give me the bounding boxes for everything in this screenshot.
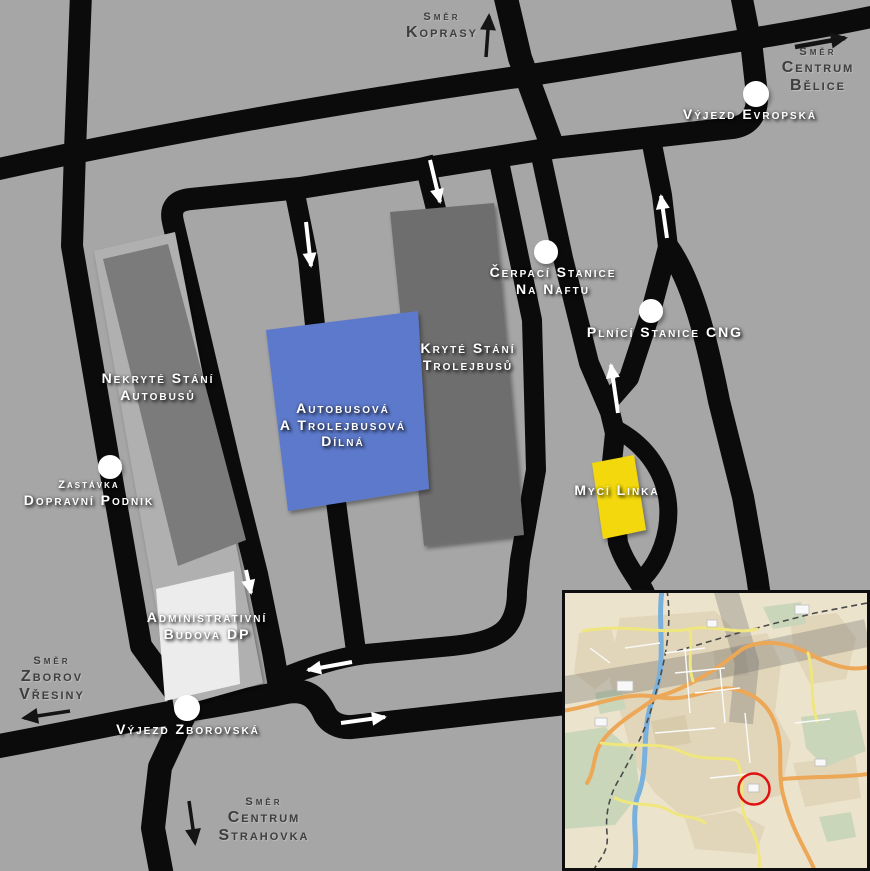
label-zastavka-dopravni-podnik: Zastávka Dopravní Podnik [24, 479, 154, 508]
dot-vyjezd-evropska[interactable] [743, 81, 769, 107]
depot-schematic-map: Nekryté Stání Autobusů Kryté Stání Trole… [0, 0, 870, 871]
dot-cerpaci-stanice[interactable] [534, 240, 558, 264]
label-vyjezd-zborovska: Výjezd Zborovská [116, 721, 260, 738]
label-dilna: Autobusová A Trolejbusová Dílná [280, 400, 406, 450]
label-smer-centrum-strahovka: Směr Centrum Strahovka [218, 796, 309, 845]
road-east-branch [668, 247, 763, 618]
dot-vyjezd-zborovska[interactable] [174, 695, 200, 721]
label-plnici-stanice-cng: Plnící Stanice CNG [587, 324, 743, 341]
label-smer-zborov-vresiny: Směr Zborov Vřesiny [19, 655, 85, 704]
label-kryte-stani: Kryté Stání Trolejbusů [421, 340, 516, 373]
road-wash-loop-left [540, 151, 651, 648]
label-admin-dp: Administrativní Budova DP [147, 609, 267, 642]
road-lower-main [0, 691, 604, 747]
arrow-smer-strahovka [189, 801, 195, 843]
dot-plnici-stanice-cng[interactable] [639, 299, 663, 323]
label-nekryte-stani: Nekryté Stání Autobusů [102, 370, 215, 403]
dot-zastavka-dopravni-podnik[interactable] [98, 455, 122, 479]
arrow-smer-koprasy [486, 16, 489, 57]
label-smer-koprasy: Směr Koprasy [406, 11, 478, 42]
label-smer-centrum-belice: Směr Centrum Bělice [782, 46, 855, 95]
inset-map-canvas [565, 593, 867, 868]
inset-city-overview-map [562, 590, 870, 871]
label-cerpaci-stanice: Čerpací Stanice Na Naftu [490, 264, 617, 297]
arrow-smer-zborov [24, 711, 70, 718]
label-vyjezd-evropska: Výjezd Evropská [683, 106, 817, 123]
label-myci-linka: Mycí Linka [574, 482, 659, 499]
